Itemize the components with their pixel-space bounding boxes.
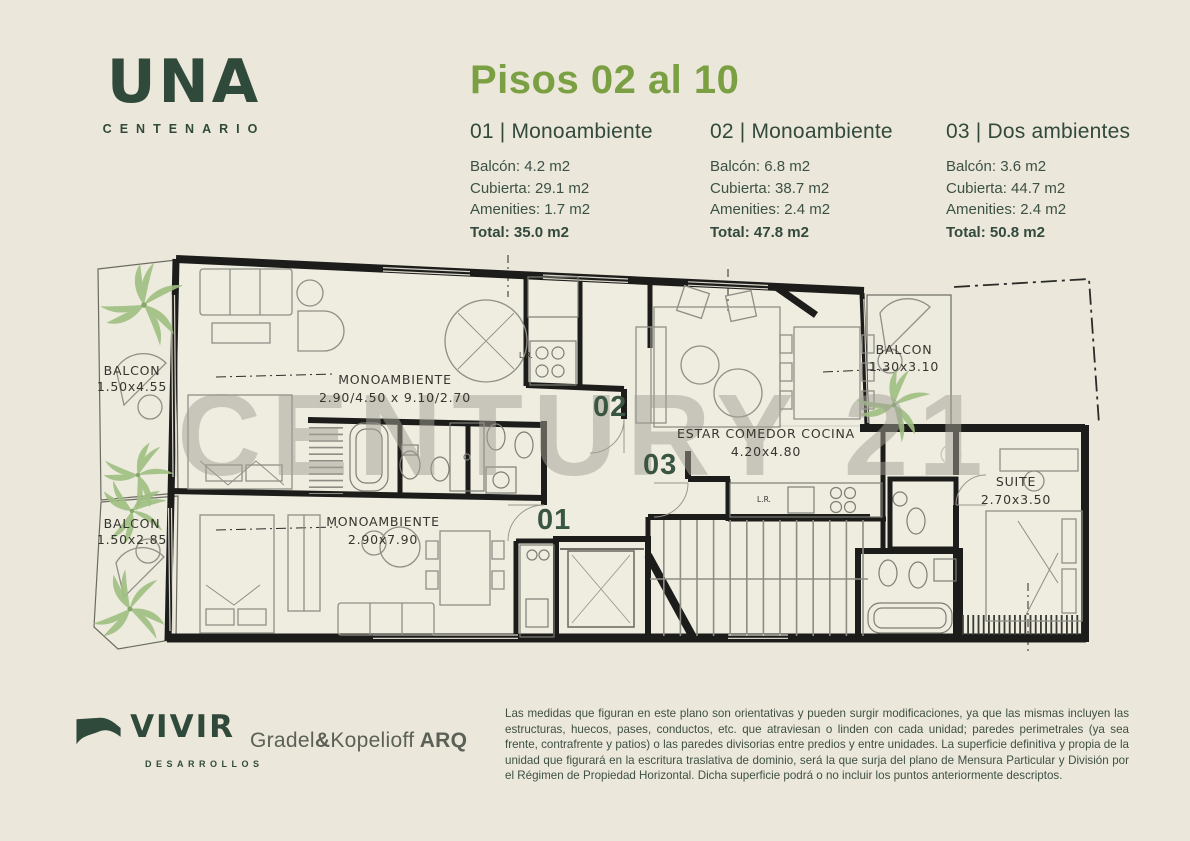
unit-03-cubierta: Cubierta: 44.7 m2 [946, 181, 1178, 197]
brand-subname: CENTENARIO [74, 122, 294, 136]
label-estar: ESTAR COMEDOR COCINA [677, 426, 855, 441]
watermark: CENTURY 21 ® [177, 370, 993, 500]
brand-name: UNA [74, 52, 294, 112]
brochure-page: UNA CENTENARIO Pisos 02 al 10 01 | Monoa… [0, 0, 1190, 841]
architect-credit: Gradel&Kopelioff ARQ [250, 729, 467, 753]
developer-name: VIVIR [130, 712, 235, 743]
unit-03-amenities: Amenities: 2.4 m2 [946, 202, 1178, 218]
unit-02-balcon: Balcón: 6.8 m2 [710, 159, 942, 175]
architect-name-2: Kopelioff [330, 729, 414, 752]
marker-unit-03: 03 [643, 449, 677, 481]
marker-unit-01: 01 [537, 504, 571, 536]
unit-card-01: 01 | Monoambiente Balcón: 4.2 m2 Cubiert… [470, 120, 702, 241]
unit-02-amenities: Amenities: 2.4 m2 [710, 202, 942, 218]
registered-mark: ® [940, 439, 962, 472]
unit-02-total: Total: 47.8 m2 [710, 224, 942, 241]
page-title: Pisos 02 al 10 [470, 58, 739, 103]
label-lr-2: L.R. [757, 495, 771, 504]
unit-01-heading: 01 | Monoambiente [470, 120, 702, 144]
label-mono-top: MONOAMBIENTE [338, 372, 452, 387]
unit-02-heading: 02 | Monoambiente [710, 120, 942, 144]
label-suite: SUITE [996, 474, 1036, 489]
unit-02-cubierta: Cubierta: 38.7 m2 [710, 181, 942, 197]
label-mono-bottom-dim: 2.90x7.90 [348, 532, 418, 547]
architect-name-1: Gradel [250, 729, 315, 752]
unit-card-02: 02 | Monoambiente Balcón: 6.8 m2 Cubiert… [710, 120, 942, 241]
unit-01-amenities: Amenities: 1.7 m2 [470, 202, 702, 218]
label-balcony-top-left: BALCON [104, 363, 161, 378]
developer-logo: VIVIR DESARROLLOS [75, 706, 235, 769]
label-estar-dim: 4.20x4.80 [731, 444, 801, 459]
watermark-text: CENTURY 21 [177, 370, 993, 500]
label-lr-1: L.R. [519, 351, 533, 360]
label-balcony-bottom-left: BALCON [104, 516, 161, 531]
label-balcony-right: BALCON [876, 342, 933, 357]
unit-01-total: Total: 35.0 m2 [470, 224, 702, 241]
label-mono-bottom: MONOAMBIENTE [326, 514, 440, 529]
marker-unit-02: 02 [593, 391, 627, 423]
label-mono-top-dim: 2.90/4.50 x 9.10/2.70 [319, 390, 471, 405]
architect-suffix: ARQ [414, 729, 467, 752]
unit-card-03: 03 | Dos ambientes Balcón: 3.6 m2 Cubier… [946, 120, 1178, 241]
label-balcony-right-dim: 1.30x3.10 [869, 359, 939, 374]
label-balcony-top-left-dim: 1.50x4.55 [97, 379, 167, 394]
label-suite-dim: 2.70x3.50 [981, 492, 1051, 507]
unit-01-cubierta: Cubierta: 29.1 m2 [470, 181, 702, 197]
unit-03-total: Total: 50.8 m2 [946, 224, 1178, 241]
developer-subname: DESARROLLOS [145, 759, 235, 769]
unit-03-balcon: Balcón: 3.6 m2 [946, 159, 1178, 175]
floor-plan: CENTURY 21 ® BALCON 1.50x4.55 BALCON 1.5… [88, 253, 1108, 703]
label-balcony-bottom-left-dim: 1.50x2.85 [97, 532, 167, 547]
unit-01-balcon: Balcón: 4.2 m2 [470, 159, 702, 175]
brand-logo: UNA CENTENARIO [74, 52, 294, 136]
legal-disclaimer: Las medidas que figuran en este plano so… [505, 706, 1129, 784]
architect-ampersand: & [315, 729, 330, 752]
unit-03-heading: 03 | Dos ambientes [946, 120, 1178, 144]
vivir-swoosh-icon [75, 706, 122, 756]
